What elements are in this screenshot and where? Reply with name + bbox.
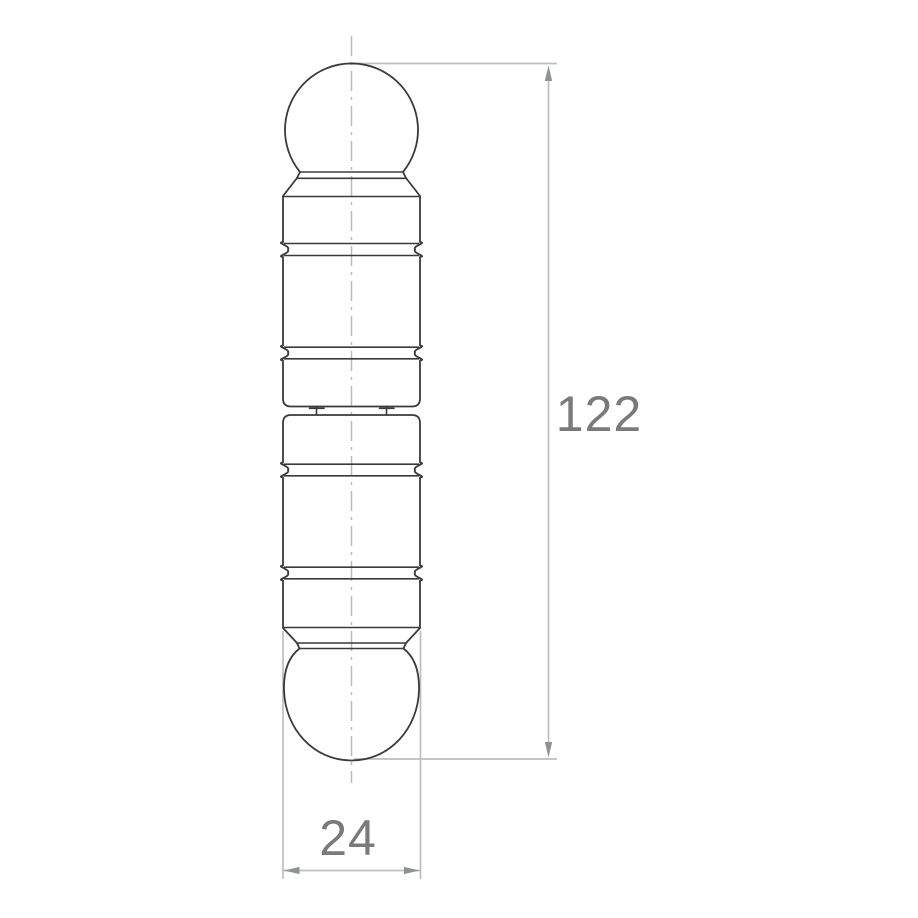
width-dimension-label: 24 (319, 810, 377, 866)
arrow-right-icon (404, 867, 420, 874)
height-dimension: 122 (352, 64, 642, 760)
technical-drawing: 122 24 (0, 0, 918, 918)
height-dimension-label: 122 (556, 386, 642, 442)
arrow-up-icon (545, 66, 552, 82)
arrow-down-icon (545, 742, 552, 758)
arrow-left-icon (284, 867, 300, 874)
drawing-canvas: 122 24 (0, 0, 918, 918)
